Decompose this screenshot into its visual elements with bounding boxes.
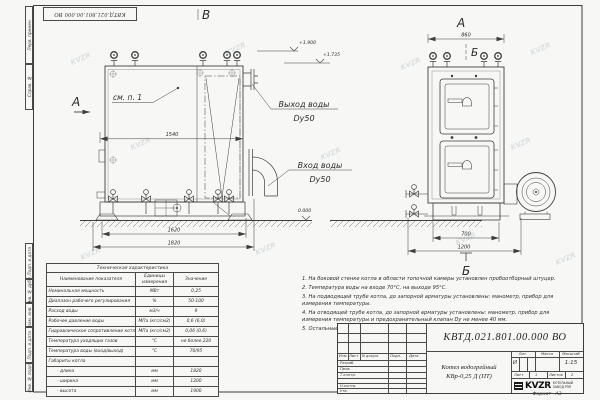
view-right-label: А xyxy=(456,16,465,30)
dim-label: 1200 xyxy=(458,245,471,251)
spec-cell: Рабочее давление воды xyxy=(47,317,136,327)
inlet-label: Вход воды xyxy=(298,161,343,170)
spec-title-row: Техническая характеристика xyxy=(47,264,219,273)
spec-cell: мм xyxy=(136,377,174,387)
format-label: Формат xyxy=(532,392,551,397)
spec-row: Температура воды (вход/выход) °С 70/95 xyxy=(47,347,219,357)
spec-cell: °С xyxy=(136,347,174,357)
spec-row: Гидравлическое сопротивление котла МПа (… xyxy=(47,327,219,337)
view-left-label: В xyxy=(202,8,210,22)
tb-lit-value: И xyxy=(511,360,519,366)
valve-icons-left-top xyxy=(111,52,241,66)
elevation-icon xyxy=(290,47,298,51)
tb-lit-label: Лит. xyxy=(511,352,535,356)
tb-col-data: Дата xyxy=(409,354,419,358)
margin-box: Справ. № xyxy=(25,64,33,110)
section-b-tick-bottom xyxy=(460,253,472,261)
spec-row: Рабочее давление воды МПа (кгс/см2) 0,6 … xyxy=(47,317,219,327)
tb-mass-label: Масса xyxy=(535,352,559,356)
spec-cell: Расход воды xyxy=(47,307,136,317)
spec-cell: Габариты котла xyxy=(47,357,136,367)
center-mark-icons xyxy=(109,69,236,164)
valve-icon xyxy=(224,52,231,66)
spec-cell: 9 xyxy=(174,307,219,317)
outlet-size-label: Dy50 xyxy=(293,114,314,123)
elevation-icon xyxy=(302,216,310,220)
spec-cell: МВт xyxy=(136,287,174,297)
spec-row: Номинальная мощность МВт 0,25 xyxy=(47,287,219,297)
spec-row: Температура уходящих газов °С не более 2… xyxy=(47,337,219,347)
dim-label: 860 xyxy=(461,33,471,39)
drawing-sheet: KVZRKVZRKVZRKVZRKVZRKVZRKVZRKVZRKVZRKVZR… xyxy=(0,0,600,400)
spec-row: Габариты котла xyxy=(47,357,219,367)
spec-cell: Температура уходящих газов xyxy=(47,337,136,347)
spec-cell: 0,6 (6,0) xyxy=(174,317,219,327)
spec-header-row: Наименование показателя Единицы измерени… xyxy=(47,273,219,287)
tb-scale-value: 1:15 xyxy=(559,360,583,366)
doc-number-stamp-text: КВТД.021.801.00.000 ВО xyxy=(54,11,126,17)
note-item: 3. На подводящей трубе котла, до запорно… xyxy=(302,294,566,309)
spec-cell: °С xyxy=(136,337,174,347)
spec-row: - высота мм 1900 xyxy=(47,387,219,397)
dim-label: 1620 xyxy=(168,228,181,234)
center-mark-icon xyxy=(109,70,117,78)
tb-sheets-label: Листов xyxy=(549,373,563,377)
valve-icon xyxy=(410,205,419,217)
spec-cell: 1820 xyxy=(174,367,219,377)
valve-icon xyxy=(430,53,437,67)
dimension-labels: 1540 1620 1820 860 700 1200 xyxy=(166,33,471,251)
spec-cell: - длина xyxy=(47,367,136,377)
tb-product-name-line2: КВр-0,25 Д (ПТ) xyxy=(446,372,492,381)
spec-cell: мм xyxy=(136,367,174,377)
tb-company: КОТЕЛЬНЫЙ ЗАВОД РЭП xyxy=(553,382,573,390)
spec-row: - длина мм 1820 xyxy=(47,367,219,377)
tb-row-utv: Утв. xyxy=(340,389,348,393)
spec-cell: 70/95 xyxy=(174,347,219,357)
margin-box: Подп. и дата xyxy=(25,243,33,279)
tb-col-list: Лист xyxy=(349,354,358,358)
spec-header: Наименование показателя xyxy=(47,273,136,287)
spec-table-title: Техническая характеристика xyxy=(47,264,219,273)
spec-cell: - ширина xyxy=(47,377,136,387)
margin-box: Подп. и дата xyxy=(25,327,33,363)
margin-box: Взам. инв. № xyxy=(25,303,33,327)
spec-cell: м3/ч xyxy=(136,307,174,317)
outlet-label: Выход воды xyxy=(279,100,330,109)
dim-label: 1820 xyxy=(168,241,181,247)
spec-cell: 0,25 xyxy=(174,287,219,297)
margin-label: Перв. примен. xyxy=(27,19,32,50)
tb-row-prov: Пров. xyxy=(340,367,351,371)
spec-row: - ширина мм 1200 xyxy=(47,377,219,387)
margin-box: Перв. примен. xyxy=(25,6,33,64)
spec-cell: 0,06 (0,6) xyxy=(174,327,219,337)
tb-logo-text: KVZR xyxy=(525,381,551,391)
view-side xyxy=(96,66,278,220)
margin-label: Взам. инв. № xyxy=(27,300,32,329)
elevation-icon xyxy=(316,59,324,63)
tb-col-podp: Подп. xyxy=(390,354,401,358)
dim-label: 700 xyxy=(461,232,471,238)
spec-row: Расход воды м3/ч 9 xyxy=(47,307,219,317)
ground-line xyxy=(80,221,482,228)
margin-label: Справ. № xyxy=(27,76,32,97)
valve-icon xyxy=(410,185,419,197)
valve-icon xyxy=(444,53,451,67)
tb-row-nkontr: Н.контр. xyxy=(340,384,357,388)
valve-icon xyxy=(132,52,139,66)
valve-icon xyxy=(111,52,118,66)
tb-product-name: Котел водогрейный КВр-0,25 Д (ПТ) xyxy=(427,351,511,393)
margin-label: Подп. и дата xyxy=(27,247,32,276)
inlet-size-label: Dy50 xyxy=(309,175,330,184)
valve-icons-front xyxy=(410,53,502,217)
format-value: А3 xyxy=(555,392,561,397)
spec-cell: Гидравлическое сопротивление котла xyxy=(47,327,136,337)
kvzr-logo-icon xyxy=(514,382,523,390)
margin-label: Инв. № подл. xyxy=(27,363,32,393)
section-arrow-label: А xyxy=(71,95,80,109)
spec-cell xyxy=(136,357,174,367)
spec-cell: МПа (кгс/см2) xyxy=(136,327,174,337)
spec-cell: % xyxy=(136,297,174,307)
margin-label: Подп. и дата xyxy=(27,331,32,360)
elevation-label: +1.900 xyxy=(299,40,316,46)
tb-col-izm: Изм. xyxy=(339,354,348,358)
note-item: 1. На боковой стенке котла в области топ… xyxy=(302,276,566,283)
spec-cell: МПа (кгс/см2) xyxy=(136,317,174,327)
spec-cell: - высота xyxy=(47,387,136,397)
spec-cell: Диапазон рабочего регулирования xyxy=(47,297,136,307)
dim-label: 1540 xyxy=(166,132,179,138)
spec-header: Значение xyxy=(174,273,219,287)
spec-cell: 1900 xyxy=(174,387,219,397)
spec-cell: Номинальная мощность xyxy=(47,287,136,297)
spec-header: Единицы измерения xyxy=(136,273,174,287)
spec-cell: 1200 xyxy=(174,377,219,387)
spec-table: Техническая характеристика Наименование … xyxy=(46,263,219,397)
valve-icon xyxy=(481,53,488,67)
doc-number-stamp: КВТД.021.801.00.000 ВО xyxy=(43,7,137,21)
tb-sheets-value: 2 xyxy=(571,373,573,377)
elevation-marks xyxy=(257,47,330,220)
tb-company-line2: ЗАВОД РЭП xyxy=(553,386,573,390)
spec-cell: не более 220 xyxy=(174,337,219,347)
tb-product-name-line1: Котел водогрейный xyxy=(441,363,496,372)
valve-icon xyxy=(495,53,502,67)
tb-row-razrab: Разраб. xyxy=(340,361,355,365)
title-block: Изм. Лист N докум. Подп. Дата Разраб. Пр… xyxy=(337,323,584,394)
view-front xyxy=(406,67,517,220)
tb-row-tkontr: Т.контр. xyxy=(340,373,356,377)
tb-scale-label: Масштаб xyxy=(559,352,583,356)
tb-sheet-value: 1 xyxy=(535,373,537,377)
spec-cell: мм xyxy=(136,387,174,397)
spec-cell xyxy=(174,357,219,367)
spec-row: Диапазон рабочего регулирования % 50-100 xyxy=(47,297,219,307)
see-note-label: см. п. 1 xyxy=(113,93,142,102)
center-mark-icon xyxy=(109,156,117,164)
note-item: 2. Температура воды на входе 70°С, на вы… xyxy=(302,285,566,292)
format-note: Формат А3 xyxy=(512,392,582,397)
elevation-label: +1.735 xyxy=(323,52,340,58)
tb-sheet-label: Лист xyxy=(514,373,523,377)
tb-logo-area: KVZR КОТЕЛЬНЫЙ ЗАВОД РЭП xyxy=(512,379,584,392)
tb-doc-number: КВТД.021.801.00.000 ВО xyxy=(427,324,583,351)
fan-icon xyxy=(517,173,556,220)
elevation-label: 0.000 xyxy=(298,208,311,214)
spec-cell: 50-100 xyxy=(174,297,219,307)
spec-cell: Температура воды (вход/выход) xyxy=(47,347,136,357)
margin-box: Инв. № подл. xyxy=(25,363,33,392)
valve-icon xyxy=(234,52,241,66)
section-b-top-label: Б xyxy=(471,47,478,59)
tb-col-doc: N докум. xyxy=(362,354,379,358)
valve-icon xyxy=(200,52,207,66)
